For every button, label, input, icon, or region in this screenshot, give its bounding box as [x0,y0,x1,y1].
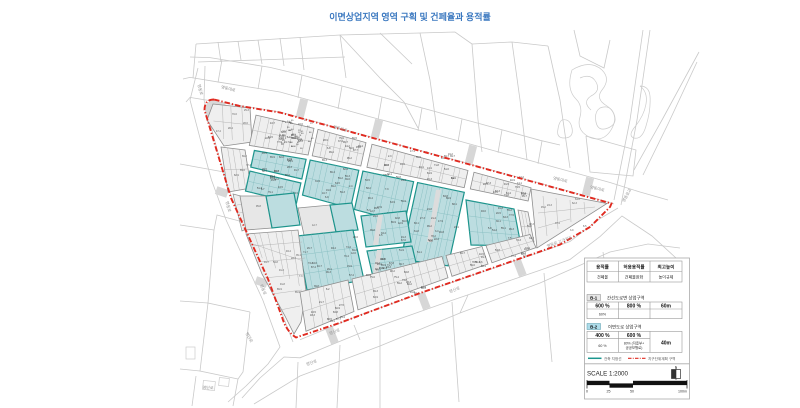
svg-text:51-9: 51-9 [399,249,404,252]
svg-text:21-4: 21-4 [431,217,436,220]
svg-text:10-6: 10-6 [400,163,405,166]
svg-text:60m: 60m [661,304,672,310]
svg-text:59-9: 59-9 [349,147,354,150]
svg-text:70-6: 70-6 [232,113,237,116]
svg-text:59-6: 59-6 [470,264,475,267]
svg-text:91-7: 91-7 [264,261,269,264]
svg-text:99-4: 99-4 [329,151,334,154]
svg-text:89-9: 89-9 [277,288,282,291]
svg-text:26-7: 26-7 [307,247,312,250]
svg-text:31-9: 31-9 [315,180,320,183]
svg-text:51-6: 51-6 [444,168,449,171]
svg-text:42-9: 42-9 [398,222,403,225]
svg-text:81-9: 81-9 [427,172,432,175]
svg-text:19-3: 19-3 [401,179,406,182]
svg-text:16-8: 16-8 [410,291,415,294]
svg-text:85-9: 85-9 [295,291,300,294]
svg-text:77-5: 77-5 [509,214,514,217]
svg-text:87-7: 87-7 [353,149,358,152]
svg-text:89-3: 89-3 [322,159,327,162]
svg-text:40m: 40m [661,341,672,347]
svg-text:46-5: 46-5 [262,152,267,155]
svg-text:39-8: 39-8 [314,285,319,288]
svg-text:68-1: 68-1 [452,203,457,206]
svg-text:80-1: 80-1 [481,265,486,268]
svg-text:82-9: 82-9 [234,174,239,177]
svg-text:28-6: 28-6 [243,122,248,125]
svg-text:600 %: 600 % [595,304,610,310]
svg-text:35-8: 35-8 [370,229,375,232]
svg-text:20-6: 20-6 [373,215,378,218]
svg-text:65-6: 65-6 [240,169,245,172]
svg-text:건폐율완화: 건폐율완화 [625,274,644,280]
svg-text:59-2: 59-2 [338,177,343,180]
svg-text:최고높이: 최고높이 [658,263,675,270]
svg-text:22-2: 22-2 [434,238,439,241]
svg-text:13-1: 13-1 [427,167,432,170]
svg-text:71-7: 71-7 [387,264,392,267]
svg-text:83-8: 83-8 [333,311,338,314]
svg-text:20-3: 20-3 [427,178,432,181]
svg-text:58-7: 58-7 [262,170,267,173]
svg-text:54-2: 54-2 [492,229,497,232]
svg-text:69-9: 69-9 [446,197,451,200]
svg-text:66-5: 66-5 [352,137,357,140]
svg-text:62-3: 62-3 [572,202,577,205]
svg-text:71-7: 71-7 [303,251,308,254]
svg-text:600 %: 600 % [627,333,642,339]
svg-text:39-7: 39-7 [450,155,455,158]
svg-text:82-8: 82-8 [279,156,284,159]
svg-text:60%: 60% [599,313,607,317]
svg-text:공공보행로): 공공보행로) [626,345,643,350]
svg-text:58-2: 58-2 [366,187,371,190]
svg-text:25-4: 25-4 [340,316,345,319]
svg-text:53-8: 53-8 [495,249,500,252]
svg-text:18-3: 18-3 [529,223,534,226]
svg-text:27-3: 27-3 [420,217,425,220]
svg-text:64-6: 64-6 [575,198,580,201]
svg-text:78-2: 78-2 [431,235,436,238]
svg-text:39-7: 39-7 [399,263,404,266]
svg-text:82-8: 82-8 [343,168,348,171]
svg-text:0: 0 [586,390,588,394]
svg-text:63-9: 63-9 [390,201,395,204]
svg-text:59-3: 59-3 [340,191,345,194]
svg-text:53-5: 53-5 [365,179,370,182]
svg-text:28-8: 28-8 [384,164,389,167]
svg-text:46-8: 46-8 [439,231,444,234]
svg-text:84-6: 84-6 [428,239,433,242]
svg-text:44-4: 44-4 [380,258,385,261]
svg-text:20-5: 20-5 [496,212,501,215]
svg-text:63-3: 63-3 [503,216,508,219]
svg-text:이면도로 상업구역: 이면도로 상업구역 [608,323,642,330]
svg-text:86-4: 86-4 [330,171,335,174]
svg-text:80-2: 80-2 [407,283,412,286]
svg-text:60-9: 60-9 [335,307,340,310]
svg-text:22-6: 22-6 [298,123,303,126]
svg-text:37-4: 37-4 [555,222,560,225]
svg-text:50: 50 [630,390,634,394]
svg-text:60 %: 60 % [598,344,607,348]
svg-text:71-8: 71-8 [504,194,509,197]
svg-text:56-5: 56-5 [416,156,421,159]
svg-text:53-8: 53-8 [273,261,278,264]
svg-text:80% (저층부+: 80% (저층부+ [624,341,644,346]
svg-text:87-4: 87-4 [311,266,316,269]
svg-text:22-7: 22-7 [291,257,296,260]
svg-text:33-6: 33-6 [312,262,317,265]
svg-text:19-6: 19-6 [326,189,331,192]
svg-text:건폐율: 건폐율 [597,274,608,280]
svg-text:93-4: 93-4 [331,247,336,250]
svg-text:20-4: 20-4 [270,175,275,178]
svg-text:96-7: 96-7 [343,141,348,144]
svg-text:81-8: 81-8 [421,286,426,289]
svg-text:74-4: 74-4 [346,246,351,249]
svg-text:61-8: 61-8 [414,230,419,233]
svg-text:95-2: 95-2 [347,157,352,160]
svg-text:12-7: 12-7 [370,210,375,213]
svg-text:33-4: 33-4 [381,232,386,235]
svg-text:간선도로변 상업구역: 간선도로변 상업구역 [607,294,645,301]
svg-text:75-4: 75-4 [394,276,399,279]
svg-text:10-5: 10-5 [479,253,484,256]
svg-text:64-5: 64-5 [335,182,340,185]
svg-text:86-9: 86-9 [391,221,396,224]
svg-text:76-5: 76-5 [515,186,520,189]
svg-text:57-4: 57-4 [349,274,354,277]
svg-text:91-3: 91-3 [279,269,284,272]
svg-text:93-4: 93-4 [286,250,291,253]
svg-text:25: 25 [607,390,611,394]
svg-text:75-6: 75-6 [370,276,375,279]
svg-text:73-3: 73-3 [516,239,521,242]
svg-text:79-1: 79-1 [268,191,273,194]
svg-text:28-9: 28-9 [323,139,328,142]
svg-text:26-1: 26-1 [288,160,293,163]
svg-text:70-4: 70-4 [344,255,349,258]
svg-text:54-1: 54-1 [417,251,422,254]
svg-text:39-3: 39-3 [373,290,378,293]
svg-text:65-9: 65-9 [270,156,275,159]
svg-text:91-8: 91-8 [280,283,285,286]
svg-text:63-9: 63-9 [373,296,378,299]
svg-text:10-7: 10-7 [322,192,327,195]
svg-text:67-2: 67-2 [521,192,526,195]
svg-text:400 %: 400 % [595,333,610,339]
svg-text:91-7: 91-7 [294,169,299,172]
svg-text:92-8: 92-8 [395,217,400,220]
svg-text:48-2: 48-2 [390,270,395,273]
svg-text:SCALE 1:2000: SCALE 1:2000 [587,371,628,378]
svg-text:23-1: 23-1 [454,226,459,229]
svg-text:영단로: 영단로 [202,384,214,391]
svg-text:91-3: 91-3 [498,207,503,210]
svg-text:39-6: 39-6 [345,178,350,181]
svg-text:24-8: 24-8 [427,208,432,211]
svg-text:용적률: 용적률 [596,263,609,270]
svg-text:45-2: 45-2 [356,146,361,149]
svg-text:91-5: 91-5 [504,183,509,186]
svg-text:87-3: 87-3 [495,190,500,193]
svg-text:19-3: 19-3 [401,236,406,239]
svg-text:22-7: 22-7 [483,183,488,186]
svg-text:27-9: 27-9 [377,206,382,209]
svg-text:28-4: 28-4 [228,127,233,130]
svg-text:34-7: 34-7 [529,237,534,240]
svg-text:B-2: B-2 [590,324,598,329]
svg-text:92-5: 92-5 [521,253,526,256]
svg-text:71-8: 71-8 [434,164,439,167]
svg-text:96-3: 96-3 [326,271,331,274]
svg-text:48-4: 48-4 [375,262,380,265]
svg-text:10-5: 10-5 [524,248,529,251]
svg-text:99-3: 99-3 [509,228,514,231]
svg-text:28-3: 28-3 [287,166,292,169]
svg-text:47-4: 47-4 [216,130,221,133]
svg-text:40-7: 40-7 [317,265,322,268]
svg-text:높이규제: 높이규제 [659,274,674,280]
svg-text:55-6: 55-6 [285,174,290,177]
svg-text:76-1: 76-1 [330,320,335,323]
svg-text:43-7: 43-7 [270,122,275,125]
svg-text:14-1: 14-1 [517,182,522,185]
svg-text:77-4: 77-4 [511,255,516,258]
svg-text:42-2: 42-2 [274,178,279,181]
svg-text:66-7: 66-7 [460,252,465,255]
svg-text:39-2: 39-2 [331,185,336,188]
svg-text:100m: 100m [678,390,687,394]
svg-text:93-6: 93-6 [481,210,486,213]
svg-text:15-9: 15-9 [347,265,352,268]
svg-text:30-1: 30-1 [496,220,501,223]
svg-text:81-5: 81-5 [268,136,273,139]
svg-text:57-7: 57-7 [336,318,341,321]
svg-text:25-3: 25-3 [244,109,249,112]
svg-text:18-3: 18-3 [310,314,315,317]
svg-text:99-2: 99-2 [427,225,432,228]
svg-text:83-8: 83-8 [404,271,409,274]
svg-text:56-9: 56-9 [401,200,406,203]
svg-text:55-1: 55-1 [501,227,506,230]
svg-text:90-4: 90-4 [368,197,373,200]
svg-text:27-5: 27-5 [339,304,344,307]
svg-text:66-6: 66-6 [402,220,407,223]
svg-text:67-6: 67-6 [401,239,406,242]
svg-text:43-5: 43-5 [278,186,283,189]
svg-text:12-7: 12-7 [312,224,317,227]
svg-text:73-8: 73-8 [402,279,407,282]
svg-text:17-1: 17-1 [410,150,415,153]
svg-text:59-2: 59-2 [397,282,402,285]
svg-text:40-9: 40-9 [510,179,515,182]
svg-text:89-9: 89-9 [379,267,384,270]
svg-text:95-8: 95-8 [256,205,261,208]
svg-text:55-2: 55-2 [507,209,512,212]
svg-text:23-6: 23-6 [353,236,358,239]
svg-text:허용용적률: 허용용적률 [623,263,645,270]
svg-text:19-7: 19-7 [481,256,486,259]
svg-text:800 %: 800 % [627,304,642,310]
svg-text:37-4: 37-4 [338,140,343,143]
svg-text:45-2: 45-2 [541,206,546,209]
svg-text:83-1: 83-1 [414,222,419,225]
svg-text:42-8: 42-8 [274,170,279,173]
svg-text:23-3: 23-3 [547,204,552,207]
svg-text:지구단위계획 구역: 지구단위계획 구역 [648,356,675,361]
svg-text:66-2: 66-2 [242,155,247,158]
svg-text:94-1: 94-1 [419,166,424,169]
svg-text:건축 지정선: 건축 지정선 [604,356,622,361]
svg-text:17-9: 17-9 [438,220,443,223]
svg-text:21-7: 21-7 [319,301,324,304]
svg-text:56-8: 56-8 [396,176,401,179]
svg-text:B-1: B-1 [590,295,598,300]
svg-text:35-1: 35-1 [296,254,301,257]
svg-text:12-6: 12-6 [351,252,356,255]
